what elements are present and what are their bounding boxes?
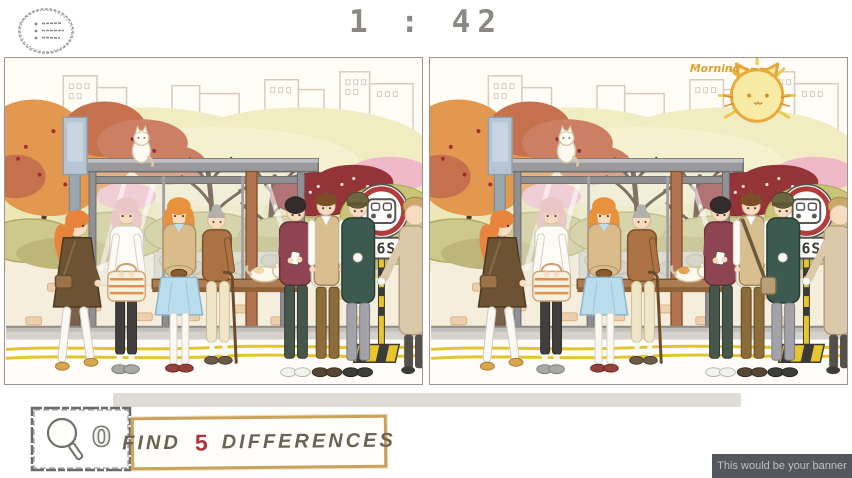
left-scene[interactable]: [5, 58, 422, 384]
bench-cat-orange-patch[interactable]: [679, 267, 690, 274]
left-scene-panel[interactable]: [4, 57, 423, 385]
differences-label: DIFFERENCES: [222, 430, 396, 455]
ad-banner[interactable]: This would be your banner: [712, 454, 852, 478]
progress-bar: [113, 393, 741, 407]
game-timer: 1 : 42: [0, 4, 852, 40]
differences-count: 5: [195, 430, 208, 457]
found-count: 0: [92, 422, 111, 453]
right-scene-panel[interactable]: Morning~~~: [429, 57, 848, 385]
morning-doodle-text: Morning~~~: [690, 62, 768, 75]
spot-the-difference-panels: Morning~~~: [4, 57, 848, 385]
right-scene[interactable]: Morning~~~: [430, 58, 847, 384]
find-differences-box: FIND 5 DIFFERENCES: [131, 415, 388, 471]
find-label: FIND: [122, 432, 181, 456]
found-counter-box: 0: [30, 406, 132, 472]
